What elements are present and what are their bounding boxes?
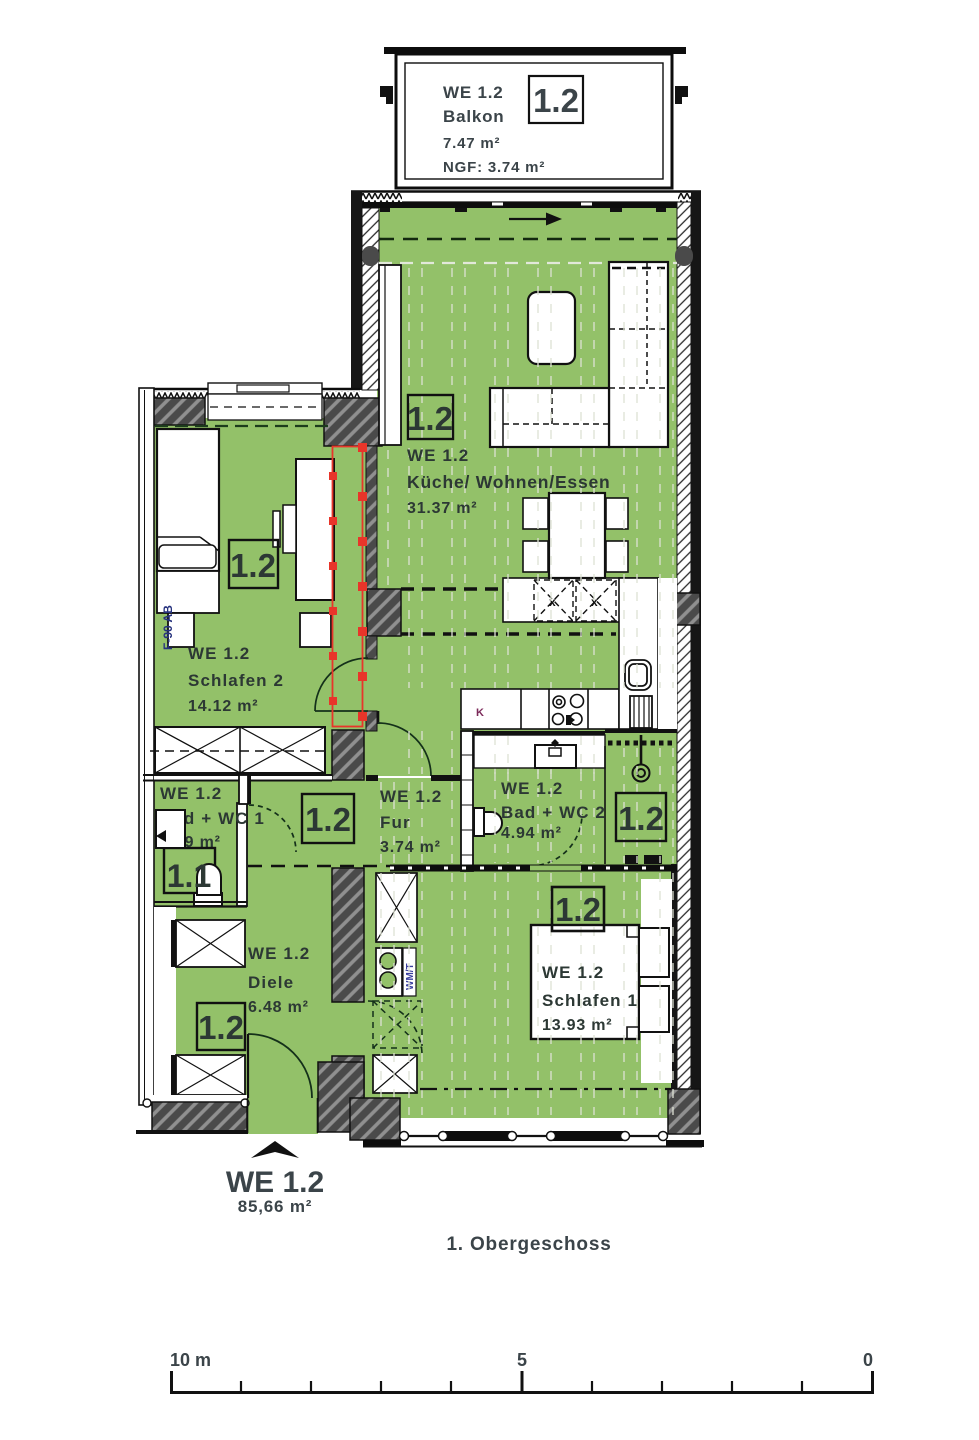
svg-text:K: K: [476, 707, 484, 719]
svg-text:Bad + WC 2: Bad + WC 2: [501, 803, 606, 822]
svg-text:1.2: 1.2: [618, 800, 664, 837]
svg-text:WE 1.2: WE 1.2: [542, 963, 604, 982]
svg-text:WE 1.2: WE 1.2: [226, 1166, 324, 1199]
svg-text:1. Obergeschoss: 1. Obergeschoss: [446, 1234, 611, 1255]
svg-text:F-90 AB: F-90 AB: [161, 605, 175, 650]
svg-text:NGF: 3.74 m²: NGF: 3.74 m²: [443, 159, 545, 176]
svg-text:5: 5: [517, 1350, 527, 1370]
svg-text:WE 1.2: WE 1.2: [188, 644, 250, 663]
svg-text:1.2: 1.2: [305, 801, 351, 838]
svg-text:WE 1.2: WE 1.2: [380, 787, 442, 806]
svg-text:WE 1.2: WE 1.2: [443, 83, 504, 102]
svg-text:1.2: 1.2: [230, 547, 276, 584]
svg-text:10 m: 10 m: [170, 1350, 211, 1370]
svg-text:WM/T: WM/T: [405, 963, 416, 990]
svg-text:1.2: 1.2: [198, 1009, 244, 1046]
svg-text:Fur: Fur: [380, 813, 411, 832]
svg-text:WE 1.2: WE 1.2: [248, 944, 310, 963]
svg-text:7.47 m²: 7.47 m²: [443, 135, 500, 152]
svg-text:1.1: 1.1: [167, 858, 211, 894]
svg-text:4.94 m²: 4.94 m²: [501, 825, 562, 842]
svg-text:Balkon: Balkon: [443, 107, 504, 126]
svg-text:Schlafen 1: Schlafen 1: [542, 991, 638, 1010]
svg-text:WE 1.2: WE 1.2: [407, 446, 469, 465]
svg-text:1.2: 1.2: [555, 891, 601, 928]
svg-text:x: x: [549, 595, 556, 609]
svg-text:85,66 m²: 85,66 m²: [238, 1197, 312, 1216]
svg-text:14.12 m²: 14.12 m²: [188, 698, 258, 715]
svg-text:0: 0: [863, 1350, 873, 1370]
svg-text:Küche/ Wohnen/Essen: Küche/ Wohnen/Essen: [407, 472, 611, 492]
svg-text:6.48 m²: 6.48 m²: [248, 999, 309, 1016]
svg-text:Diele: Diele: [248, 973, 294, 992]
svg-text:3.74 m²: 3.74 m²: [380, 839, 441, 856]
svg-text:WE 1.2: WE 1.2: [160, 784, 222, 803]
svg-text:Schlafen 2: Schlafen 2: [188, 671, 284, 690]
svg-text:13.93 m²: 13.93 m²: [542, 1017, 612, 1034]
svg-text:1.2: 1.2: [407, 400, 453, 437]
svg-text:1.2: 1.2: [533, 82, 579, 119]
svg-text:WE 1.2: WE 1.2: [501, 779, 563, 798]
svg-text:31.37 m²: 31.37 m²: [407, 500, 477, 517]
